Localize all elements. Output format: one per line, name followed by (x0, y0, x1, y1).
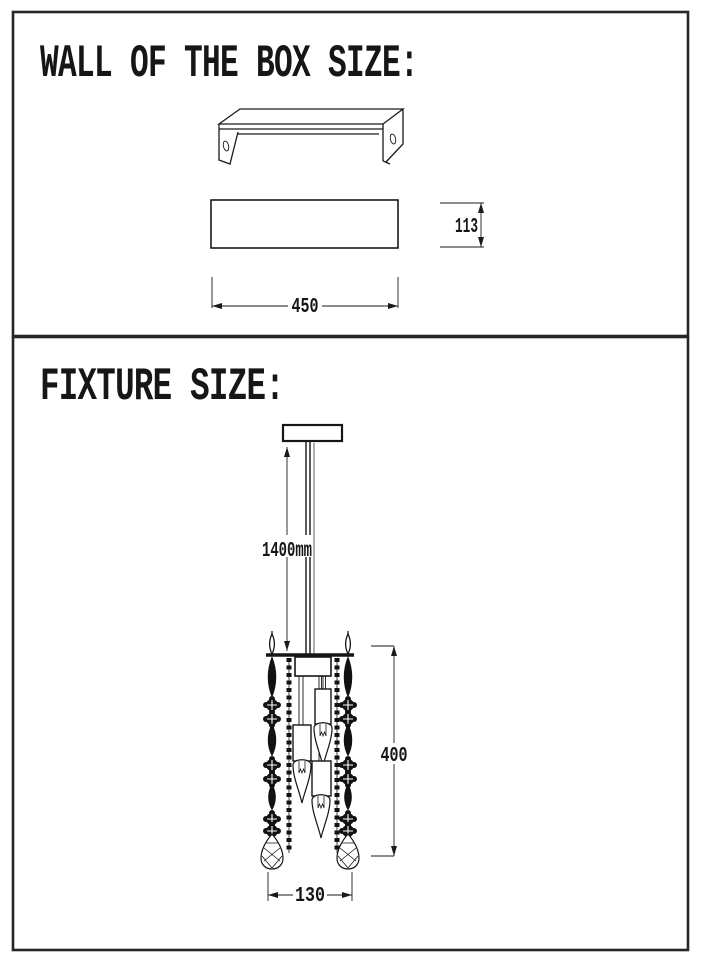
candle-bulb (314, 723, 332, 766)
crystal-teardrop-pendant (337, 834, 359, 869)
crystal-teardrop-pendant (261, 834, 283, 869)
crystal-marquise-bead (344, 723, 353, 757)
ceiling-canopy (283, 425, 342, 441)
candle-bulb (312, 795, 330, 838)
crystal-marquise-bead (344, 783, 352, 810)
fixture-drawing: 1400mm (258, 425, 410, 908)
fixture-height-dimension: 400 (371, 646, 410, 856)
wall-box-title: WALL OF THE BOX SIZE: (40, 38, 418, 90)
candle-bulb (293, 760, 311, 803)
mount-hole-right (389, 134, 396, 145)
fixture-height-value: 400 (381, 745, 408, 768)
fixture-width-value: 130 (295, 885, 325, 908)
spec-sheet-page: WALL OF THE BOX SIZE: FIXTURE SIZE: 113 … (0, 0, 702, 966)
box-3d-view (219, 109, 403, 164)
bulb-socket (312, 761, 331, 796)
crystal-marquise-bead (268, 783, 276, 810)
crystal-marquise-bead (268, 723, 277, 757)
finial-ornament (270, 631, 275, 655)
lamp-housing (295, 657, 331, 676)
box-height-dimension: 113 (440, 203, 484, 247)
drop-dimension: 1400mm (258, 447, 313, 651)
box-width-dimension: 450 (212, 277, 398, 319)
fixture-title: FIXTURE SIZE: (40, 361, 284, 413)
fixture-width-dimension: 130 (268, 872, 352, 908)
finial-ornament (346, 631, 351, 655)
bulb-socket (315, 689, 331, 724)
box-width-value: 450 (292, 296, 319, 319)
crystal-strand-left (261, 656, 283, 869)
spec-diagram-svg: WALL OF THE BOX SIZE: FIXTURE SIZE: 113 … (0, 0, 702, 966)
crystal-marquise-bead (344, 656, 353, 698)
mount-hole-left (222, 141, 229, 152)
box-front-view (211, 200, 398, 248)
drop-value: 1400mm (262, 540, 312, 563)
bulb-socket (293, 725, 311, 761)
box-height-value: 113 (455, 216, 478, 239)
crystal-strand-right (337, 656, 359, 869)
crystal-marquise-bead (268, 656, 277, 698)
